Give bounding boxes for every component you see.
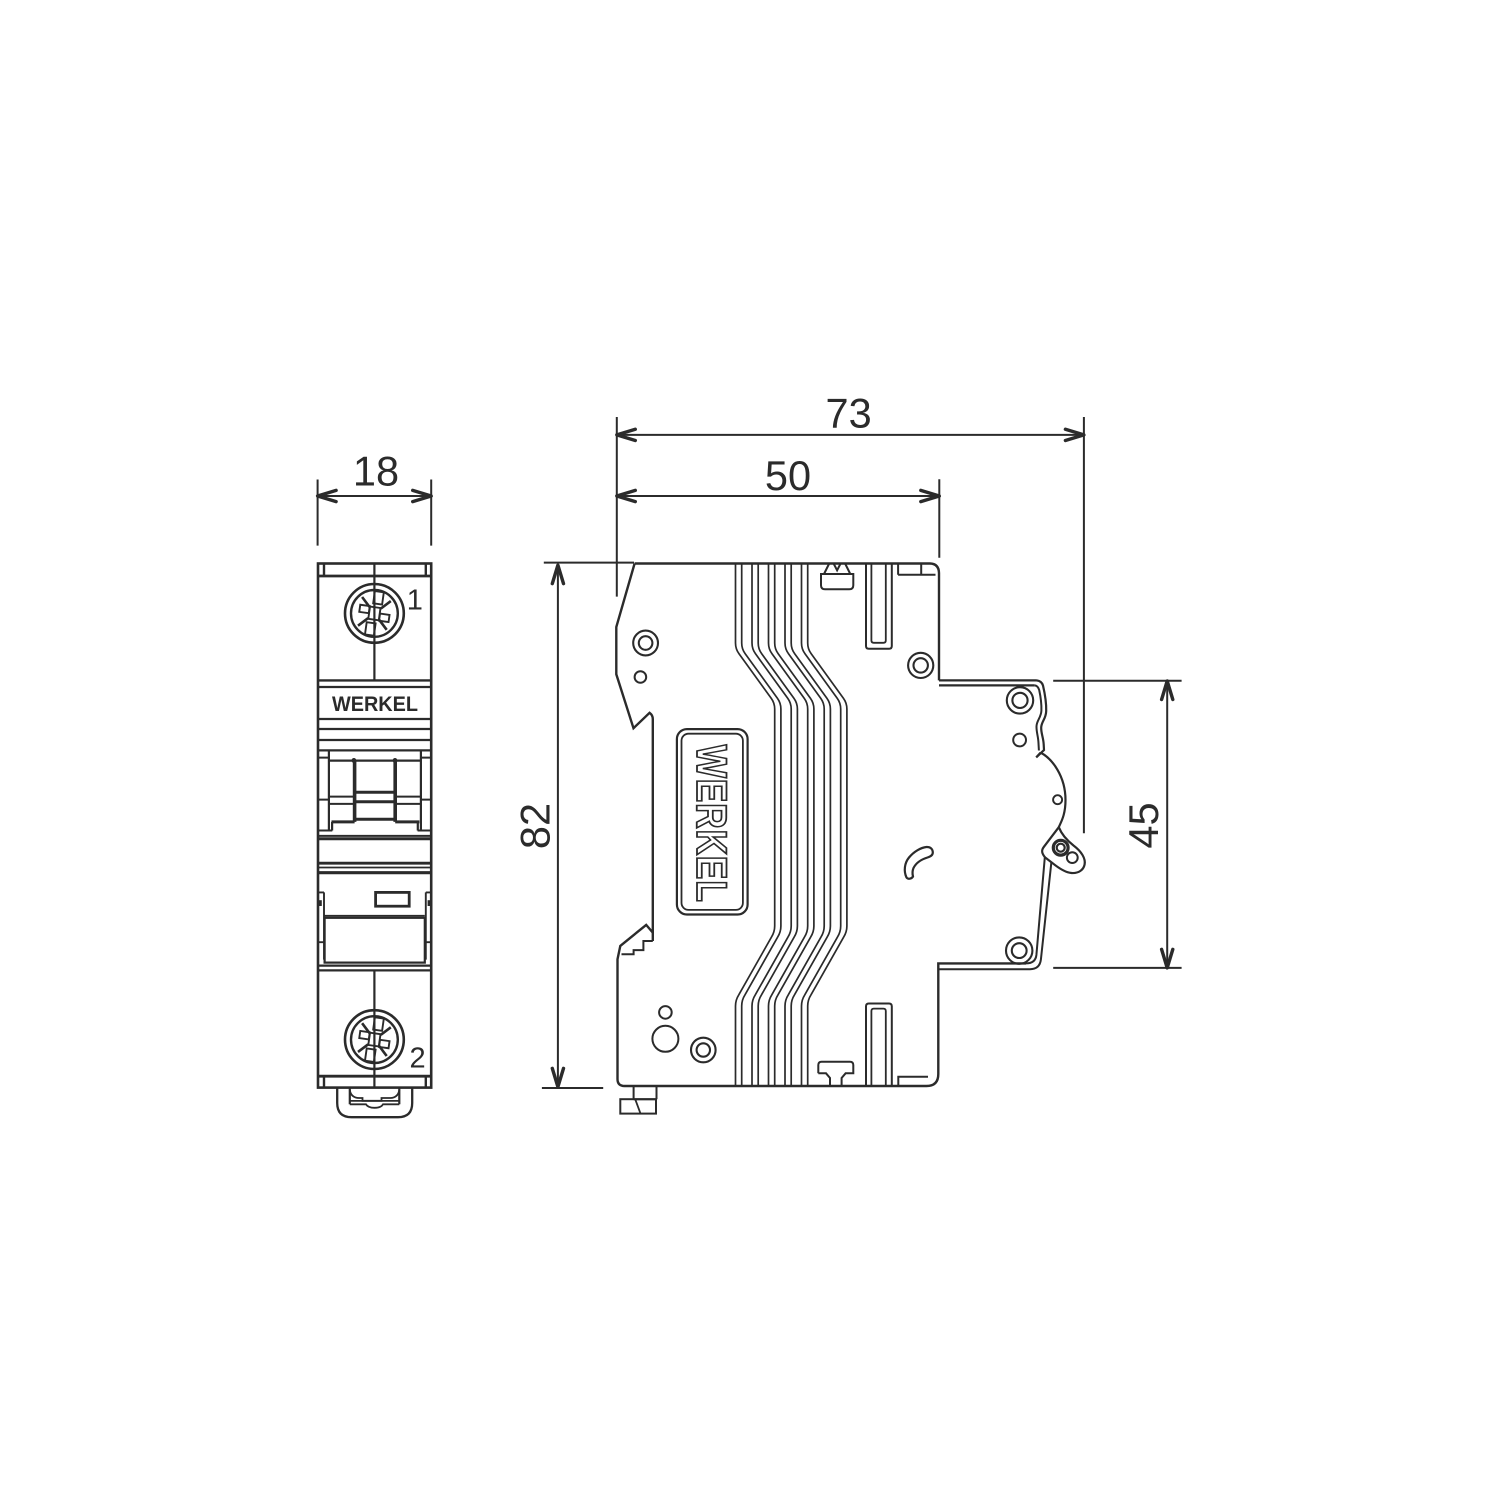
svg-text:WERKEL: WERKEL (332, 692, 418, 716)
svg-text:50: 50 (765, 452, 811, 499)
svg-text:1: 1 (407, 585, 423, 617)
svg-text:73: 73 (826, 390, 872, 437)
svg-text:45: 45 (1120, 802, 1167, 848)
svg-text:18: 18 (353, 448, 399, 495)
svg-text:82: 82 (511, 803, 558, 849)
svg-text:2: 2 (410, 1042, 426, 1074)
svg-text:WERKEL: WERKEL (687, 745, 735, 903)
